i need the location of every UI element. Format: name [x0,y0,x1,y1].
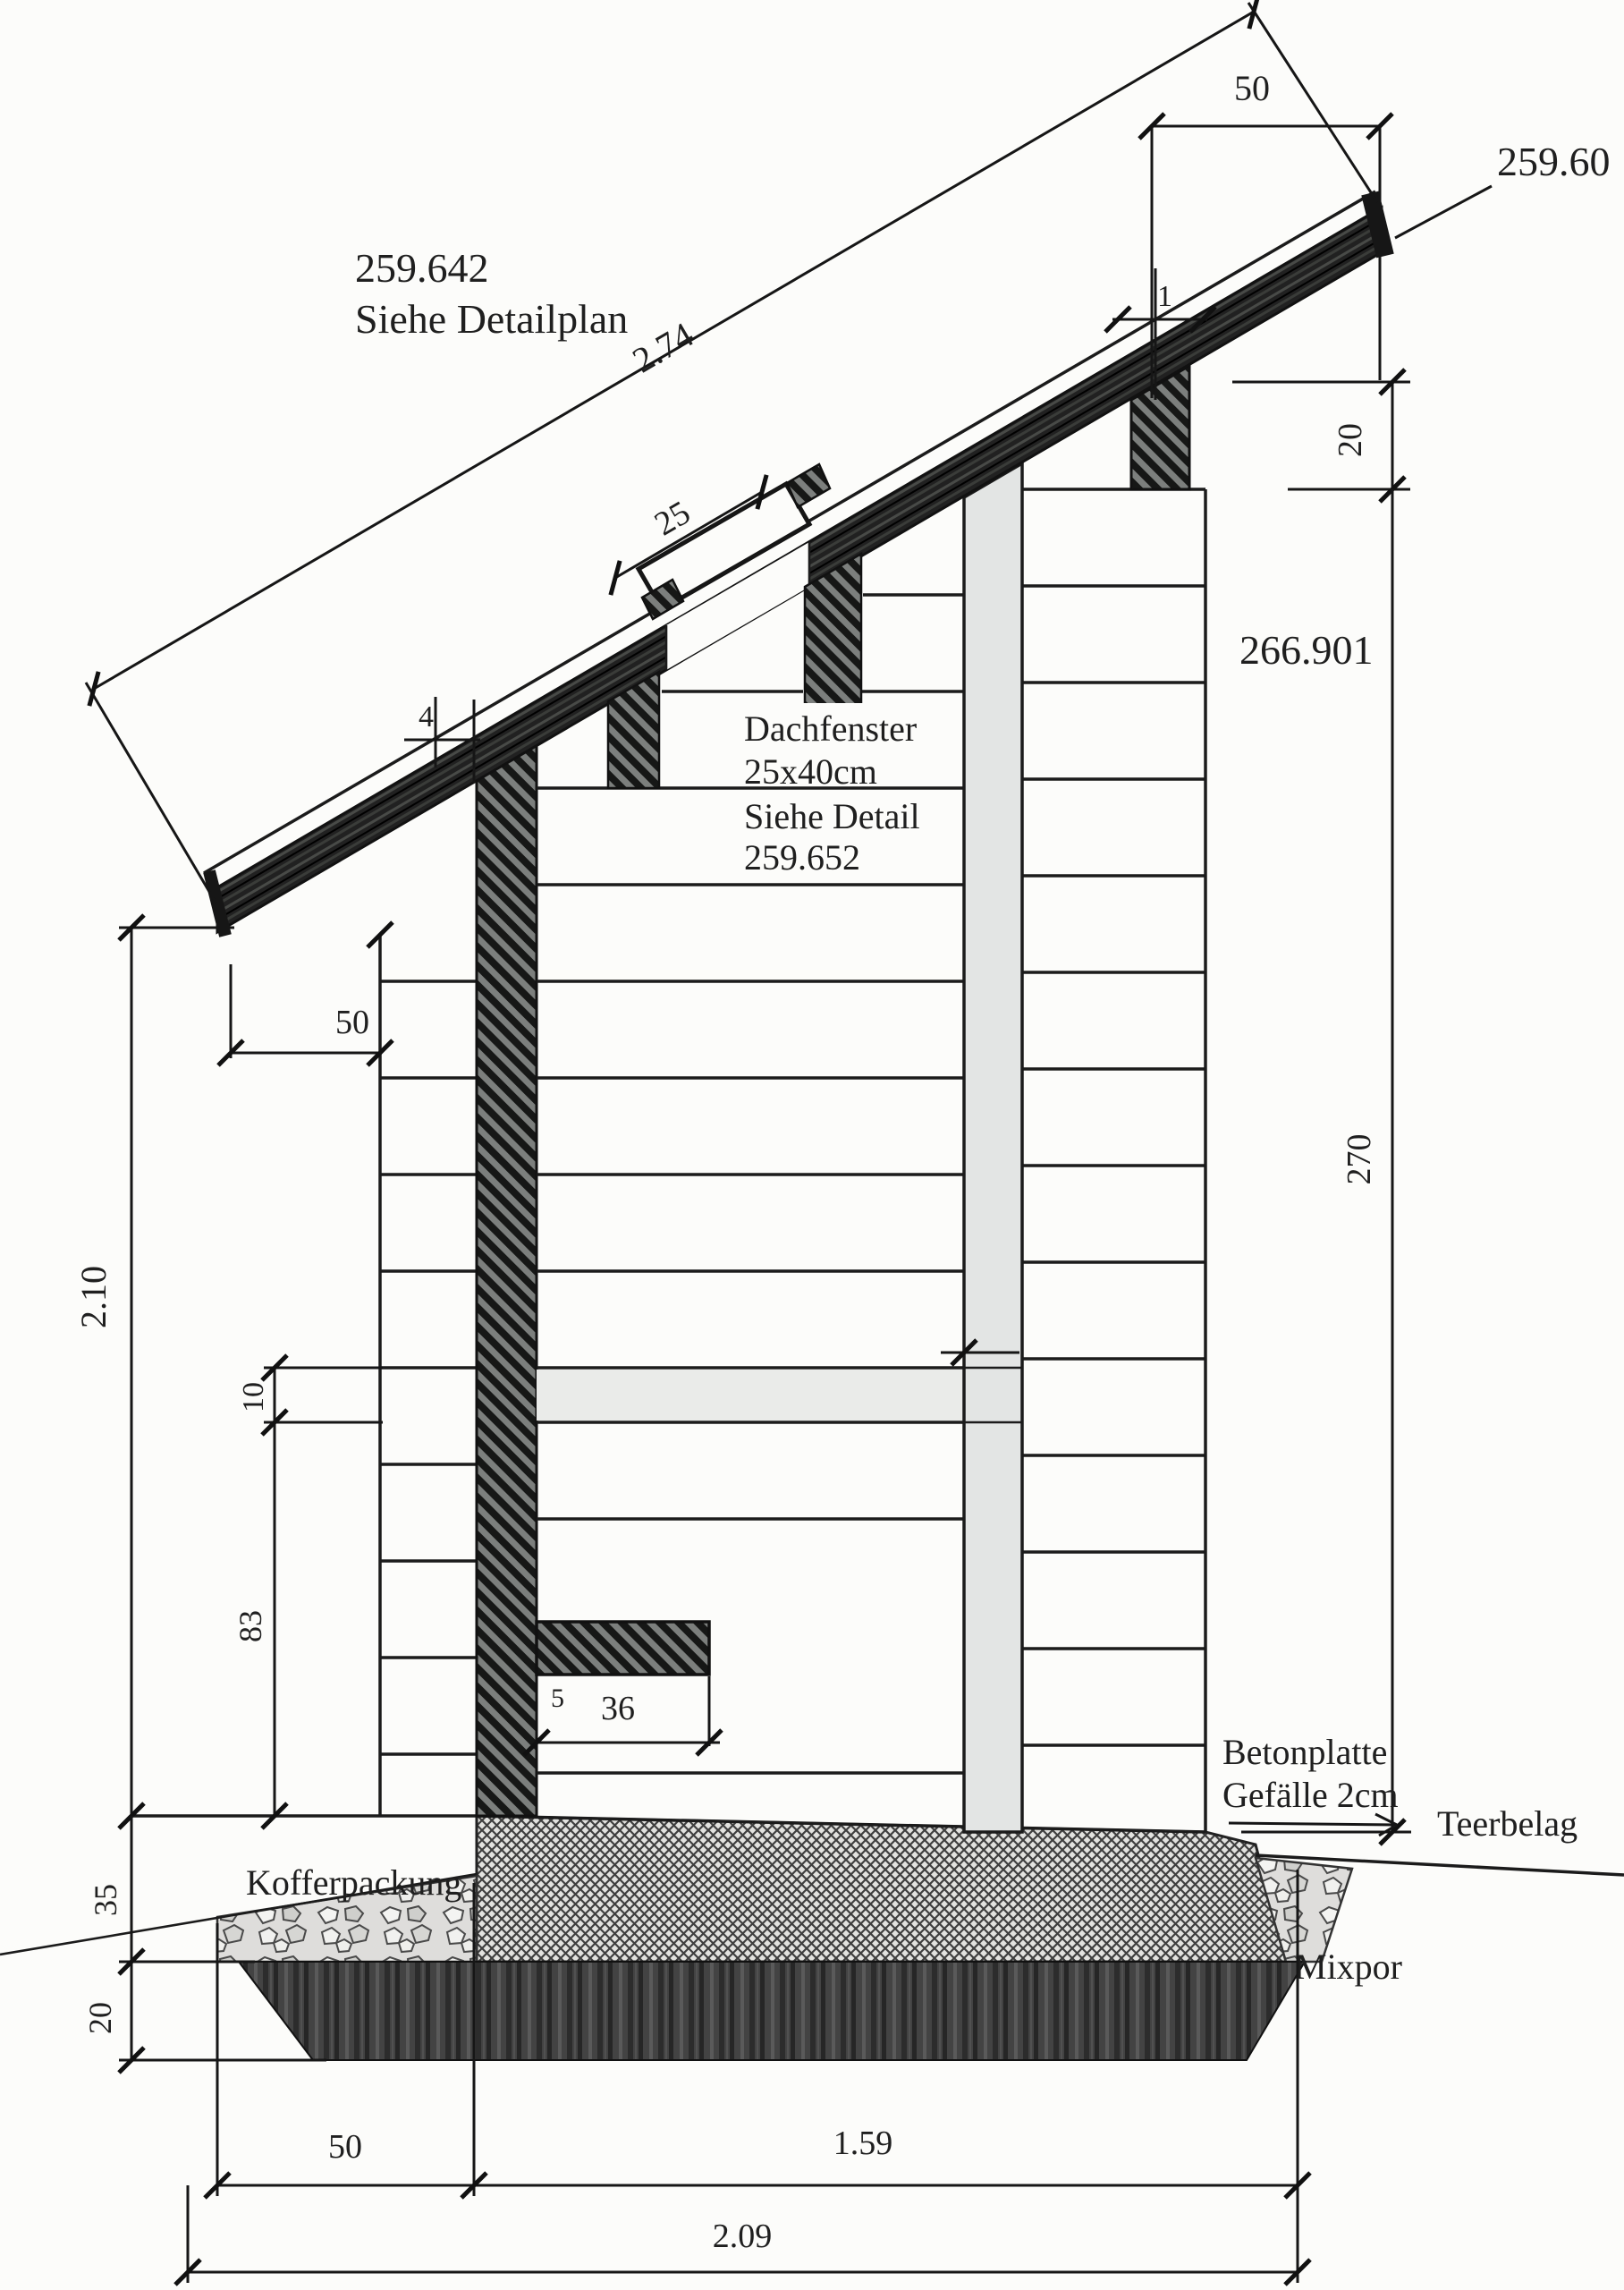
dim-purlin-height: 20 [1332,423,1369,457]
dim-bench-depth: 36 [601,1690,635,1727]
dim-base-course: 35 [88,1884,123,1916]
architectural-section-drawing: 259.642 Siehe Detailplan 2.74 50 259.60 … [0,0,1624,2290]
dim-inner-width: 1.59 [833,2125,893,2162]
insulation-label: Mixpor [1295,1946,1402,1987]
roof-window-note-2: 25x40cm [744,751,877,792]
elevation-label-eave: 259.60 [1497,139,1611,184]
bench [537,1622,709,1675]
elevation-label-ridge: 259.642 [355,245,489,291]
dim-sheathing: 4 [419,700,434,734]
dim-batten: 1 [1157,280,1172,313]
foundation [0,1816,1624,2060]
dim-wall-height: 270 [1341,1134,1378,1185]
roof-window-note-3: Siehe Detail [744,796,920,836]
see-detail-plan-note: Siehe Detailplan [355,296,628,342]
dim-insulation-height: 20 [82,2002,118,2034]
dim-shelf-thickness: 10 [237,1382,270,1412]
shelf-band [537,1370,964,1421]
roof-window-note-4: 259.652 [744,837,860,878]
dim-ridge-offset: 50 [1234,68,1270,108]
dim-bench-inset: 5 [551,1684,564,1713]
mixpor-layer [239,1962,1305,2060]
section-drawing-canvas: 259.642 Siehe Detailplan 2.74 50 259.60 … [0,0,1624,2290]
left-wall-section [477,744,537,1816]
gravel-packing-label: Kofferpackung [246,1862,461,1903]
dim-plinth-width: 50 [328,2128,362,2166]
dim-room-height: 2.10 [73,1266,114,1328]
right-wall-courses [1022,489,1205,1745]
concrete-note-1: Betonplatte [1222,1732,1387,1772]
tar-surface-label: Teerbelag [1437,1803,1577,1844]
middle-column-section [964,463,1022,1832]
dim-eave-overhang: 50 [335,1004,369,1041]
dim-parapet-height: 83 [233,1610,268,1642]
elevation-label-wall-top: 266.901 [1239,627,1374,673]
concrete-slab [477,1816,1286,1962]
concrete-note-2: Gefälle 2cm [1222,1775,1399,1815]
roof-window-note-1: Dachfenster [744,708,917,749]
left-leaf-courses [380,981,477,1754]
dim-total-width: 2.09 [713,2218,773,2255]
